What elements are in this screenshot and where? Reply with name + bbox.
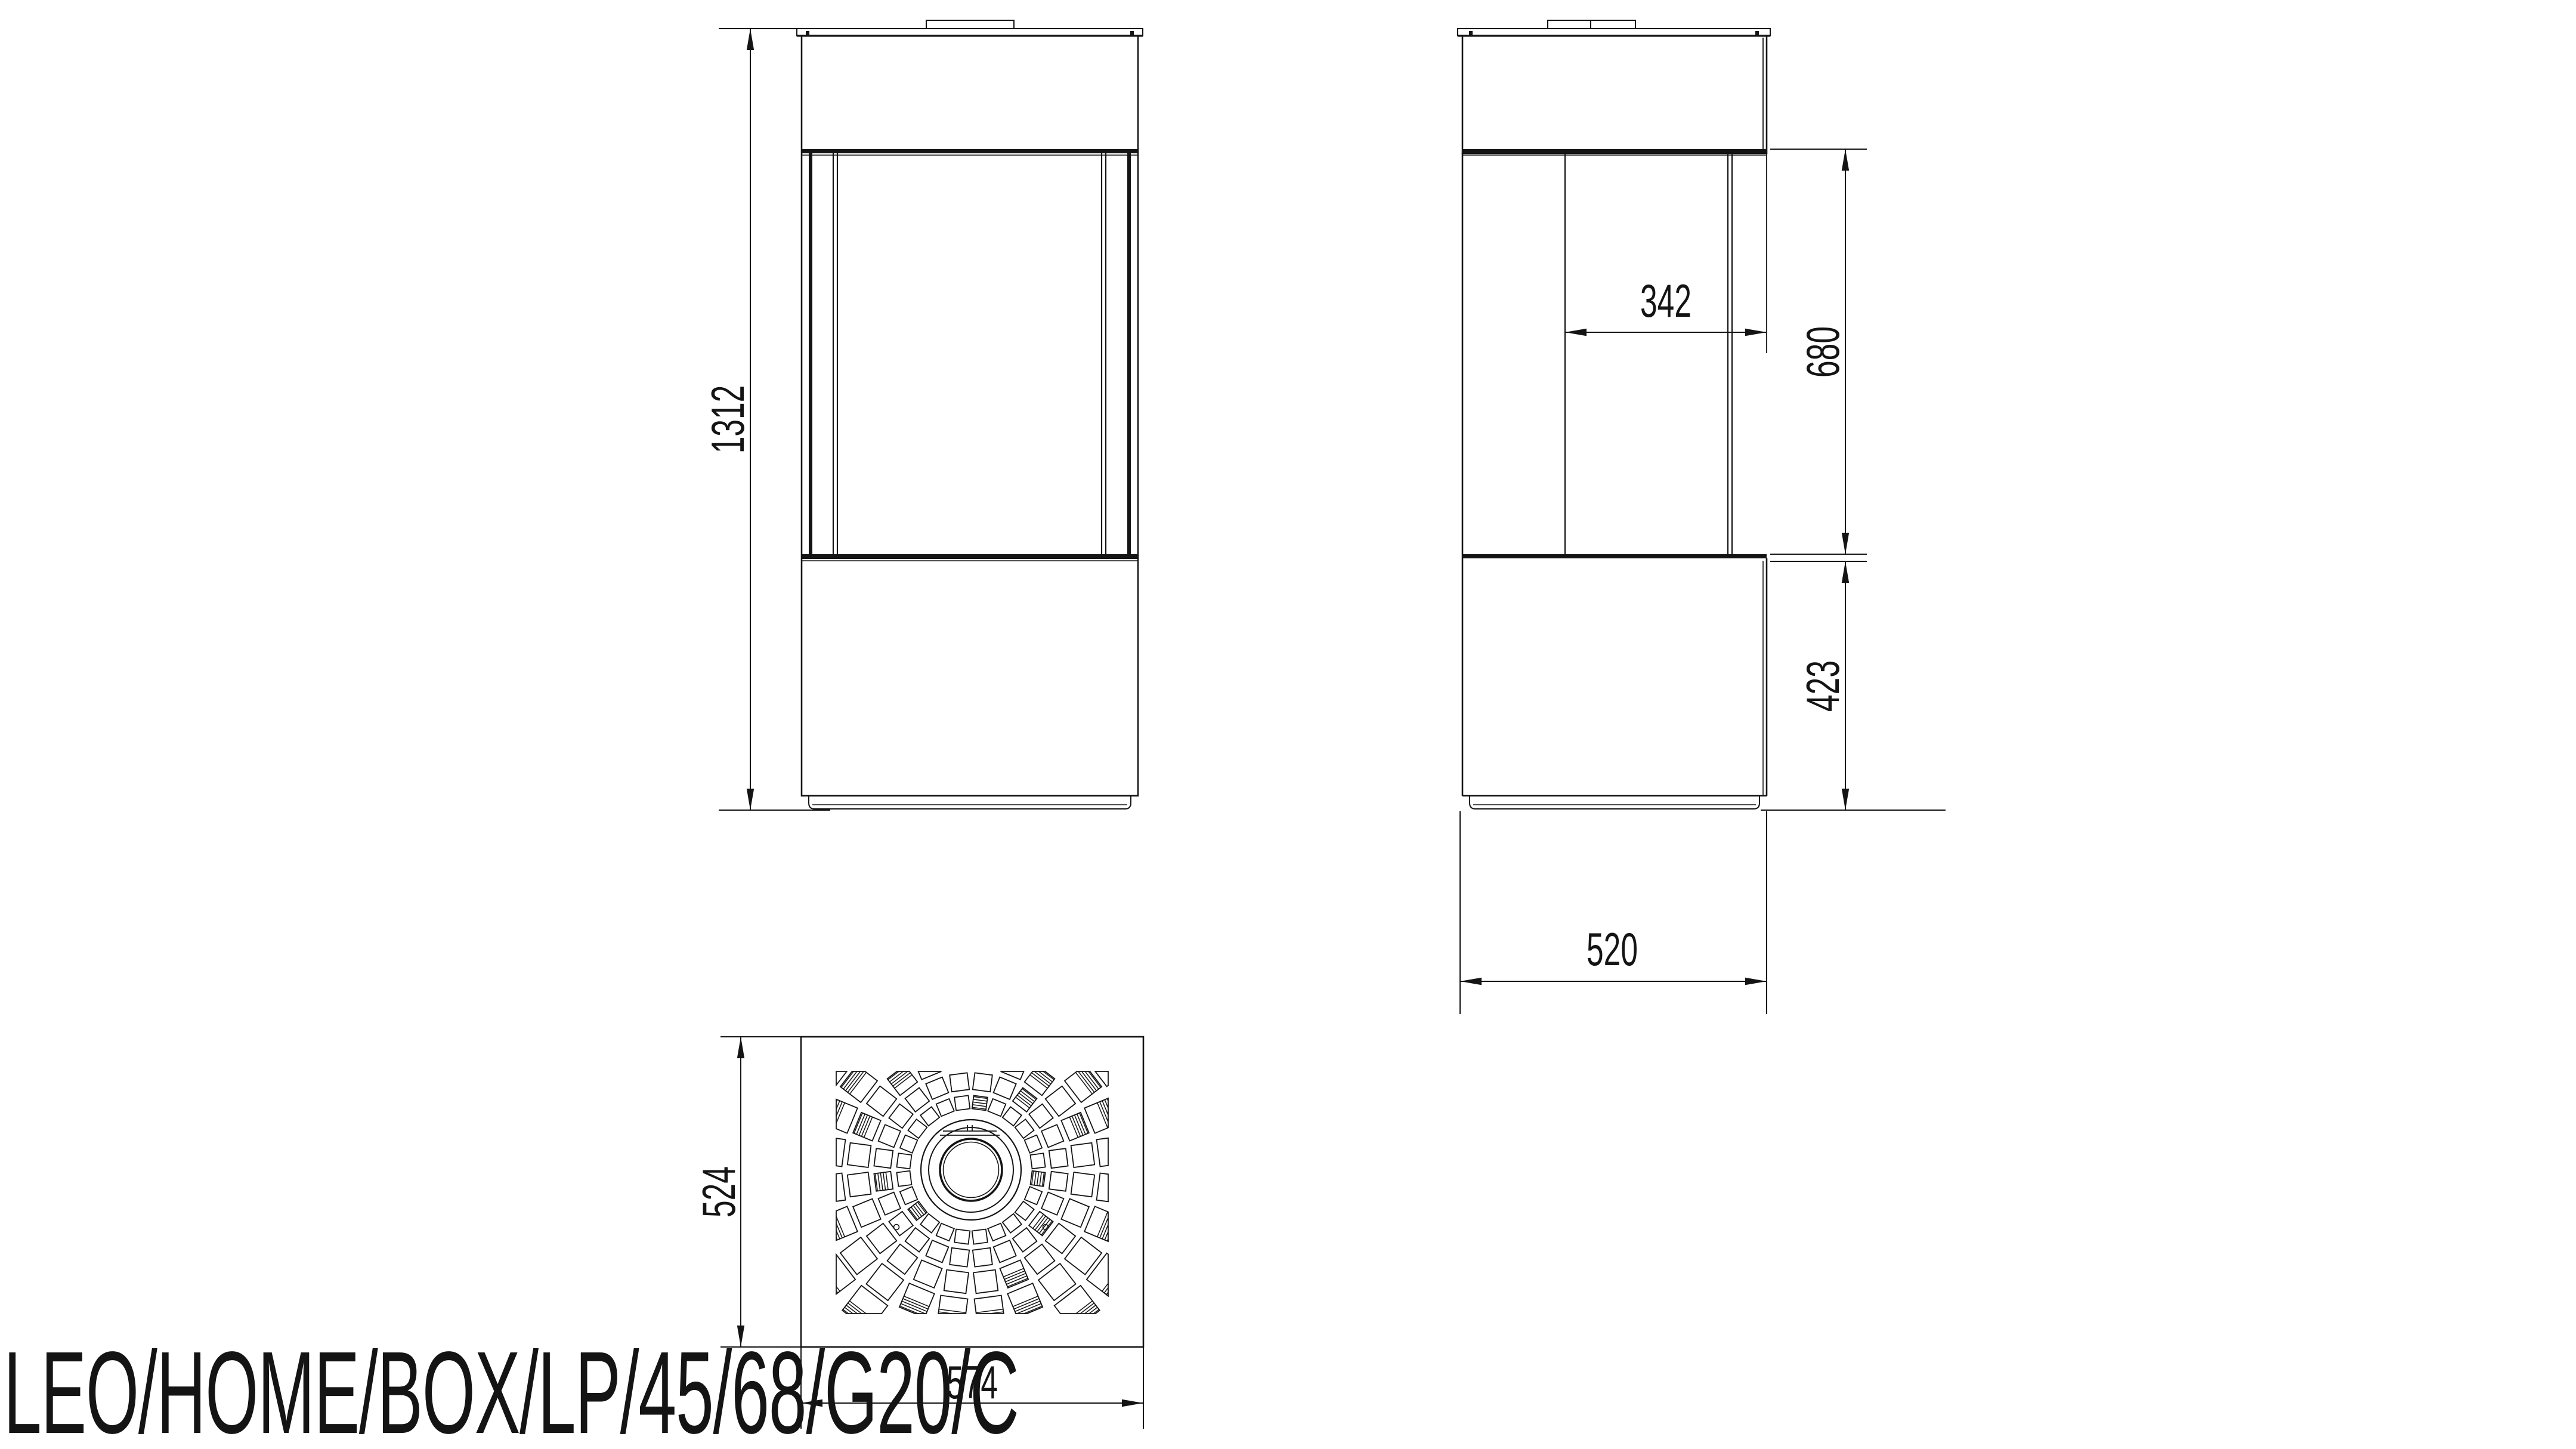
dimension-body-depth: 520 <box>1460 811 1767 1014</box>
perforation-hole <box>867 1224 896 1254</box>
perforation-hole <box>914 1260 942 1288</box>
perforation-hole <box>867 1086 896 1117</box>
perforation-hole <box>973 1073 992 1092</box>
perforation-hole <box>1013 1228 1037 1252</box>
perforation-hole <box>1003 1107 1022 1126</box>
perforation-hole <box>1015 1201 1034 1221</box>
technical-drawing: LEO/HOME/BOX/LP/45/68/G20/C 131234268042… <box>0 0 2576 1449</box>
perforation-hole <box>954 1229 970 1244</box>
perforation-hole <box>908 1119 927 1138</box>
perforation-hole <box>1071 1172 1095 1197</box>
dimension-arrowhead <box>1460 978 1482 985</box>
perforation-hole <box>905 1228 930 1252</box>
dimension-label-base_height: 423 <box>1797 660 1849 712</box>
dimension-arrowhead <box>1122 1399 1143 1407</box>
dimension-base-height: 423 <box>1761 561 1946 810</box>
perforation-hole <box>899 1283 935 1314</box>
perforation-hole <box>1031 1153 1046 1169</box>
perforation-hole <box>1041 1124 1063 1147</box>
perforation-hole <box>973 1270 998 1294</box>
perforation-hole <box>879 1124 901 1147</box>
perforation-hole <box>1025 1244 1055 1274</box>
perforation-hole <box>1025 1187 1042 1204</box>
perforation-hole <box>1049 1172 1068 1191</box>
perforation-hole <box>900 1187 917 1204</box>
perforation-hole <box>889 1212 913 1236</box>
drawing-canvas: LEO/HOME/BOX/LP/45/68/G20/C 131234268042… <box>0 0 2576 1449</box>
perforation-hole <box>1084 1206 1108 1241</box>
perforation-hole <box>936 1099 954 1116</box>
perforation-hole <box>944 1270 969 1294</box>
perforation-hole <box>887 1244 918 1274</box>
perforation-hole <box>1029 1104 1053 1129</box>
perforation-hole <box>926 1077 948 1099</box>
perforation-hole <box>1046 1086 1075 1117</box>
perforation-hole <box>936 1224 954 1241</box>
perforation-hole <box>853 1199 881 1228</box>
dimension-label-top_plate_depth: 524 <box>693 1166 745 1218</box>
dimension-label-body_depth: 520 <box>1587 923 1638 975</box>
perforation-hole <box>836 1173 846 1201</box>
dimension-label-top_plate_width: 574 <box>947 1357 998 1408</box>
product-code: LEO/HOME/BOX/LP/45/68/G20/C <box>4 1328 1019 1449</box>
perforation-hole <box>896 1153 911 1169</box>
dimension-arrowhead <box>1565 329 1587 336</box>
product-code-label: LEO/HOME/BOX/LP/45/68/G20/C <box>4 1328 1019 1449</box>
dimension-arrowhead <box>747 29 754 50</box>
perforation-hole <box>1003 1214 1022 1233</box>
perforation-hole <box>879 1192 901 1215</box>
perforation-hole <box>1097 1138 1109 1167</box>
dimension-door-depth: 342 <box>1565 152 1767 353</box>
perforation-hole <box>1084 1098 1108 1133</box>
perforation-hole <box>1071 1143 1095 1167</box>
dimension-arrowhead <box>1842 149 1849 171</box>
perforation-hole <box>1046 1224 1075 1254</box>
side-view <box>1458 20 1770 809</box>
perforation-hole <box>972 1229 988 1244</box>
perforation-hole <box>988 1099 1006 1116</box>
perforation-hole <box>950 1248 969 1267</box>
perforation-hole <box>889 1104 913 1129</box>
dimension-arrowhead <box>747 789 754 810</box>
dimension-arrowhead <box>1842 533 1849 554</box>
perforation-hole <box>954 1095 970 1110</box>
perforation-hole <box>920 1107 939 1126</box>
dimension-arrowhead <box>1745 329 1767 336</box>
perforation-hole <box>926 1240 948 1262</box>
perforation-hole <box>848 1143 871 1167</box>
perforation-hole <box>1061 1199 1089 1228</box>
front-view <box>797 20 1143 809</box>
perforation-hole <box>1097 1173 1109 1202</box>
perforation-hole <box>900 1135 917 1153</box>
dimension-arrowhead <box>1842 561 1849 583</box>
dimension-top-plate-depth: 524 <box>693 1037 801 1347</box>
dimension-arrowhead <box>1745 978 1767 985</box>
dimension-label-overall_height: 1312 <box>702 385 754 454</box>
perforation-hole <box>1015 1119 1034 1138</box>
perforation-hole <box>848 1172 871 1197</box>
perforation-hole <box>994 1240 1016 1262</box>
perforation-hole <box>1041 1192 1063 1215</box>
dimension-label-firebox_height: 680 <box>1797 326 1849 378</box>
perforation-hole <box>920 1214 939 1233</box>
perforation-hole <box>1025 1135 1042 1153</box>
perforation-hole <box>1013 1087 1037 1111</box>
perforation-hole <box>874 1148 893 1168</box>
perforation-hole <box>1029 1212 1053 1236</box>
perforation-hole <box>988 1224 1006 1241</box>
dimension-firebox-height: 680 <box>1770 149 1867 554</box>
perforation-hole <box>836 1138 846 1166</box>
perforation-hole <box>905 1087 930 1111</box>
perforation-hole <box>1049 1148 1068 1168</box>
perforation-hole <box>896 1171 911 1187</box>
perforation-hole <box>994 1077 1016 1099</box>
perforation-hole <box>950 1073 969 1092</box>
dimension-arrowhead <box>1842 789 1849 810</box>
dimension-label-door_depth: 342 <box>1640 275 1691 327</box>
perforation-hole <box>973 1248 992 1267</box>
dimension-arrowhead <box>737 1037 744 1058</box>
top-view <box>801 1028 1143 1347</box>
perforation-hole <box>1007 1283 1043 1314</box>
